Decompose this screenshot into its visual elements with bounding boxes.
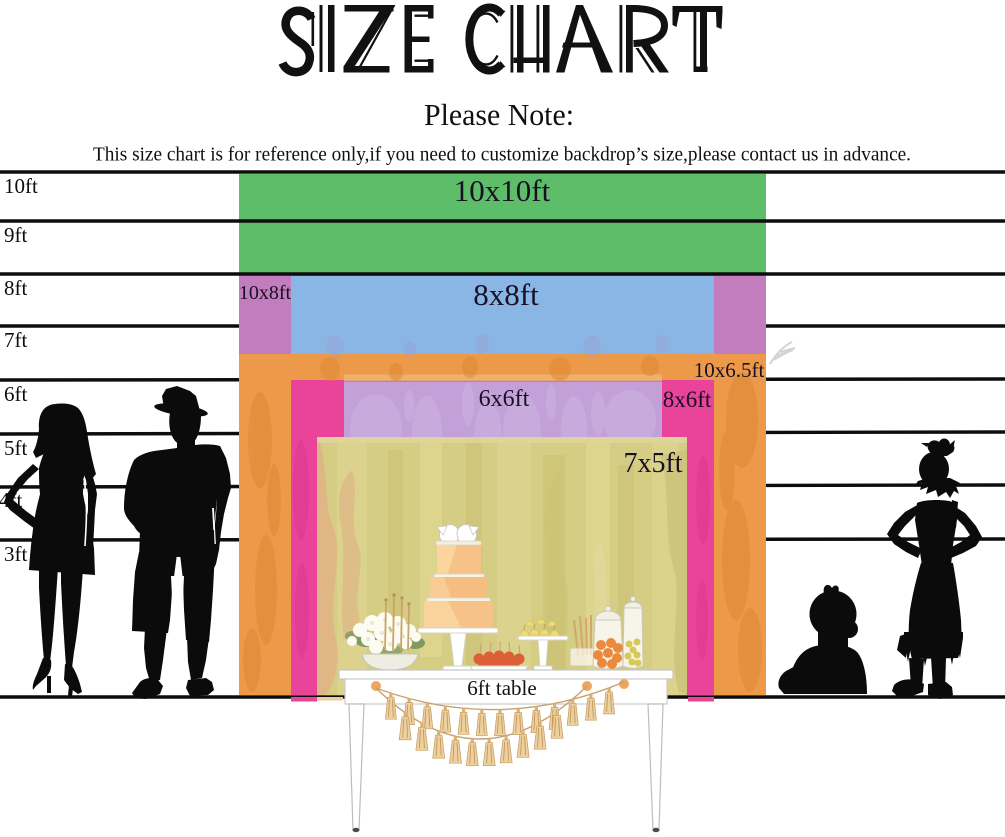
- svg-text:6ft: 6ft: [4, 382, 27, 406]
- svg-text:7ft: 7ft: [4, 328, 27, 352]
- svg-text:Please Note:: Please Note:: [424, 97, 574, 132]
- svg-text:6x6ft: 6x6ft: [479, 386, 530, 412]
- svg-text:5ft: 5ft: [4, 436, 27, 460]
- svg-text:This size chart is for referen: This size chart is for reference only,if…: [93, 144, 911, 166]
- svg-text:10x6.5ft: 10x6.5ft: [694, 358, 765, 382]
- svg-text:8ft: 8ft: [4, 276, 27, 300]
- svg-text:10x8ft: 10x8ft: [239, 282, 292, 304]
- svg-text:10x10ft: 10x10ft: [454, 173, 551, 208]
- svg-text:10ft: 10ft: [4, 174, 38, 198]
- svg-text:9ft: 9ft: [4, 223, 27, 247]
- svg-text:8x8ft: 8x8ft: [473, 277, 539, 312]
- svg-text:8x6ft: 8x6ft: [663, 387, 712, 412]
- svg-text:6ft table: 6ft table: [467, 676, 536, 700]
- svg-text:7x5ft: 7x5ft: [623, 448, 682, 479]
- svg-text:3ft: 3ft: [4, 542, 27, 566]
